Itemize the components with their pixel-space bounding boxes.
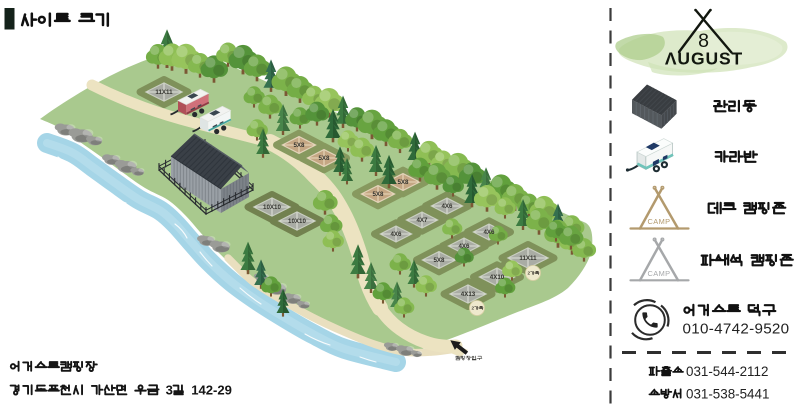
svg-text:5X8: 5X8 [372,191,384,198]
svg-text:4X6: 4X6 [441,203,453,210]
svg-text:10X10: 10X10 [288,218,306,225]
svg-text:11X11: 11X11 [155,89,173,96]
svg-text:031-538-5441: 031-538-5441 [686,387,769,402]
svg-text:2: 2 [472,306,475,311]
svg-text:010-4742-9520: 010-4742-9520 [683,321,790,338]
svg-text:4X6: 4X6 [458,243,470,250]
svg-text:5X8: 5X8 [318,155,330,162]
svg-text:CAMP: CAMP [648,269,671,278]
svg-text:142-29: 142-29 [191,383,232,398]
svg-text:5X8: 5X8 [293,142,305,149]
svg-text:4X13: 4X13 [461,291,476,298]
svg-text:4X6: 4X6 [483,229,495,236]
svg-text:10X10: 10X10 [263,204,281,211]
svg-text:11X11: 11X11 [519,255,537,262]
svg-text:031-544-2112: 031-544-2112 [686,364,768,379]
svg-text:CAMP: CAMP [648,217,671,226]
svg-text:5X8: 5X8 [397,179,409,186]
svg-text:ΛUGUST: ΛUGUST [665,49,743,69]
svg-text:4X7: 4X7 [416,217,428,224]
svg-text:5X8: 5X8 [433,257,445,264]
svg-text:4X6: 4X6 [390,231,402,238]
svg-text:3: 3 [166,383,173,398]
svg-text:4X10: 4X10 [490,274,505,281]
svg-text:2: 2 [528,271,531,276]
